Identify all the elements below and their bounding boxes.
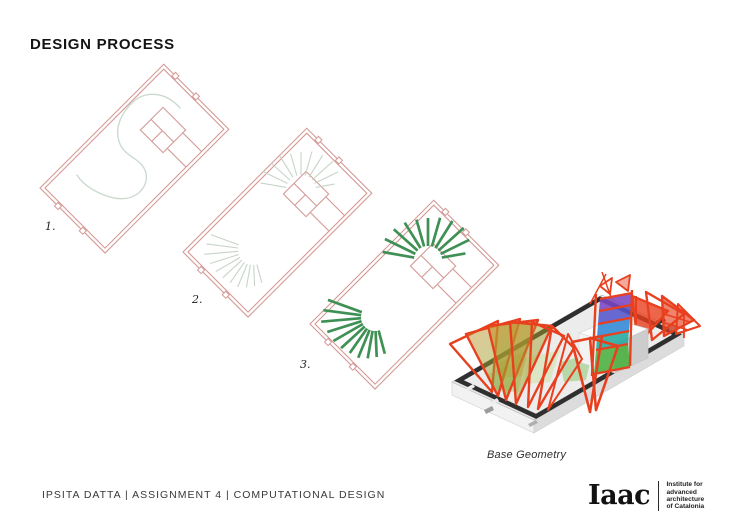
step-label-2: 2. [192,293,203,306]
footer-credit: IPSITA DATTA | ASSIGNMENT 4 | COMPUTATIO… [42,489,385,501]
page-title: DESIGN PROCESS [30,36,175,53]
logo-tagline-line: advanced [666,489,704,496]
rib-lines-upper [261,152,338,188]
design-process-slide: DESIGN PROCESS 1. 2. 3. [0,0,730,516]
logo-wordmark: Iaac [588,481,650,511]
iaac-logo: Iaac Institute for advanced architecture… [588,479,704,513]
logo-tagline-line: Institute for [666,481,704,488]
logo-tagline-line: of Catalonia [666,503,704,510]
rib-lines-lower [204,235,262,288]
logo-tagline-line: architecture [666,496,704,503]
attractor-curve [77,94,180,198]
render-caption: Base Geometry [487,449,566,461]
step-label-3: 3. [300,358,311,371]
step-label-1: 1. [45,220,56,233]
logo-divider [658,481,659,511]
logo-tagline: Institute for advanced architecture of C… [666,481,704,511]
base-geometry-render: Base Geometry [440,264,730,469]
